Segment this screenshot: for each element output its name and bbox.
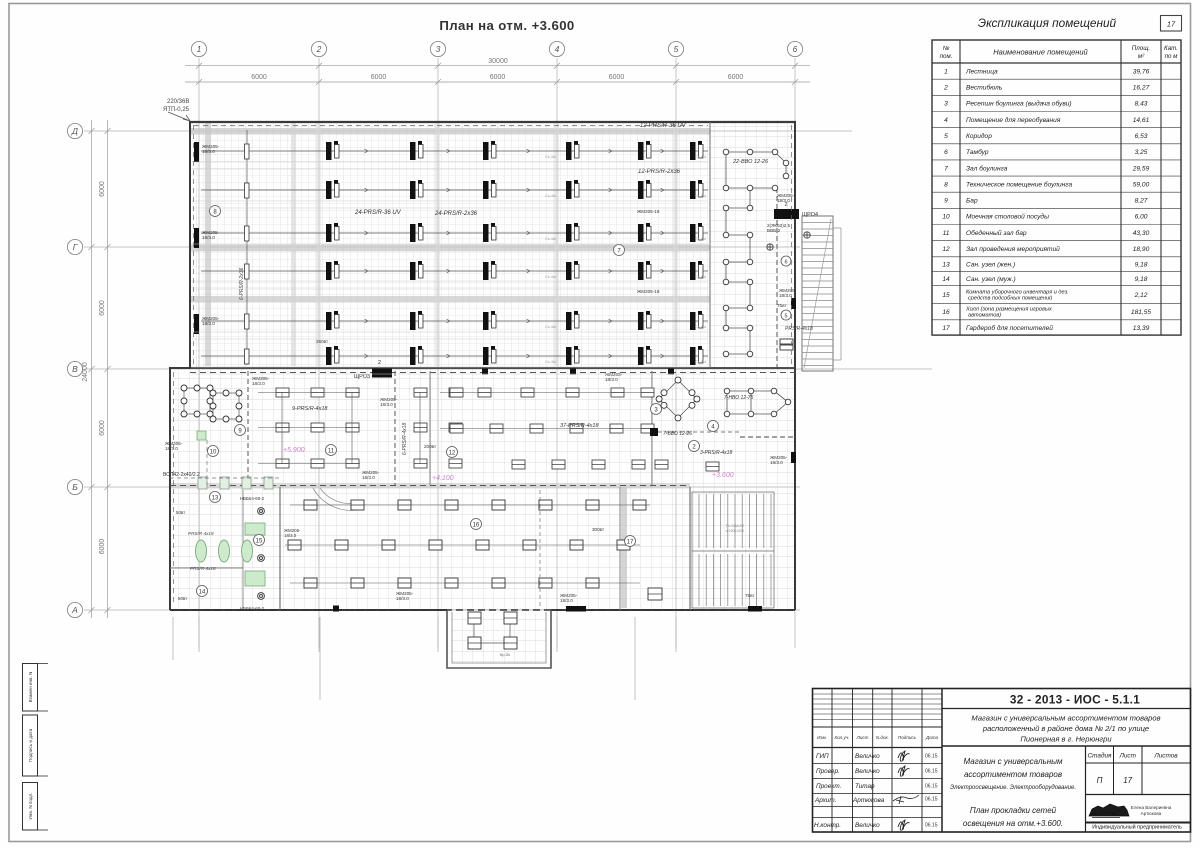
svg-text:ВВБ-2: ВВБ-2 xyxy=(767,228,781,233)
svg-text:Изм.: Изм. xyxy=(817,735,827,740)
svg-text:Кр.Зч: Кр.Зч xyxy=(500,652,510,657)
svg-text:Сь.4Ы: Сь.4Ы xyxy=(695,237,707,241)
svg-text:+5.900: +5.900 xyxy=(283,447,305,454)
svg-text:300вт: 300вт xyxy=(592,527,605,532)
svg-text:Артюкова: Артюкова xyxy=(852,797,885,804)
svg-text:Величко: Величко xyxy=(855,822,880,829)
svg-text:6000: 6000 xyxy=(490,74,506,81)
svg-text:29,59: 29,59 xyxy=(1132,165,1150,172)
svg-text:18/3.0: 18/3.0 xyxy=(770,460,783,465)
svg-text:ЩРО3: ЩРО3 xyxy=(354,374,370,380)
svg-text:06.15: 06.15 xyxy=(925,823,938,829)
svg-text:6: 6 xyxy=(944,149,948,156)
svg-text:Электроосвещение. Электрообору: Электроосвещение. Электрооборудование. xyxy=(950,785,1076,791)
svg-text:Дата: Дата xyxy=(925,735,939,740)
svg-text:24-PRS/R-2х36: 24-PRS/R-2х36 xyxy=(434,211,478,217)
svg-text:Наименование помещений: Наименование помещений xyxy=(993,48,1088,57)
svg-text:6000: 6000 xyxy=(728,74,744,81)
svg-text:9-PRS/R-4х18: 9-PRS/R-4х18 xyxy=(292,406,328,412)
svg-text:18/3.0: 18/3.0 xyxy=(252,381,265,386)
svg-text:Лист: Лист xyxy=(1118,753,1136,760)
svg-text:Д: Д xyxy=(71,126,78,136)
svg-text:4: 4 xyxy=(555,44,560,54)
svg-text:Обеденный зал бар: Обеденный зал бар xyxy=(966,229,1027,237)
svg-text:17: 17 xyxy=(942,325,950,332)
svg-text:6000: 6000 xyxy=(251,74,267,81)
svg-text:Ресепшн боулинга (выдача обуви: Ресепшн боулинга (выдача обуви) xyxy=(966,100,1072,108)
svg-text:50вт: 50вт xyxy=(176,510,185,515)
svg-text:расположенный в районе дома №: расположенный в районе дома № 2/1 по ули… xyxy=(982,724,1149,733)
svg-text:5: 5 xyxy=(784,314,787,320)
svg-text:12-PRS/R-36 UV: 12-PRS/R-36 UV xyxy=(640,123,687,129)
svg-text:18/3.0: 18/3.0 xyxy=(777,198,790,203)
svg-text:7: 7 xyxy=(944,165,948,172)
svg-text:4: 4 xyxy=(944,117,948,124)
svg-text:Проект.: Проект. xyxy=(816,783,841,790)
svg-text:Магазин с универсальным: Магазин с универсальным xyxy=(964,757,1063,766)
svg-text:Сь.4Ы: Сь.4Ы xyxy=(695,275,707,279)
svg-text:6: 6 xyxy=(784,260,787,266)
svg-text:ВСП42-2х40/2.2: ВСП42-2х40/2.2 xyxy=(163,472,200,478)
svg-text:ЩРО4: ЩРО4 xyxy=(802,212,818,218)
svg-text:N.док.: N.док. xyxy=(876,735,889,740)
svg-text:6,53: 6,53 xyxy=(1135,133,1148,140)
svg-text:18/3.0: 18/3.0 xyxy=(202,235,215,240)
svg-text:2: 2 xyxy=(378,360,381,366)
svg-text:Б: Б xyxy=(72,482,78,492)
svg-text:по м: по м xyxy=(1165,53,1179,60)
svg-text:Н.контр.: Н.контр. xyxy=(814,822,841,829)
svg-text:Техническое помещение боулинга: Техническое помещение боулинга xyxy=(966,180,1072,188)
svg-text:12-PRS/R-2х36: 12-PRS/R-2х36 xyxy=(638,169,681,175)
svg-text:06.15: 06.15 xyxy=(925,769,938,775)
svg-text:18/3.0: 18/3.0 xyxy=(202,321,215,326)
svg-text:Сь.4Ы: Сь.4Ы xyxy=(545,194,557,198)
svg-text:6,00: 6,00 xyxy=(1135,214,1148,221)
svg-text:06.15: 06.15 xyxy=(925,754,938,760)
svg-text:Елена Валериевна: Елена Валериевна xyxy=(1131,805,1172,810)
svg-text:9,18: 9,18 xyxy=(1135,261,1148,268)
svg-text:НББ64-60-2: НББ64-60-2 xyxy=(240,496,265,501)
svg-text:32 - 2013 - ИОС - 5.1.1: 32 - 2013 - ИОС - 5.1.1 xyxy=(1010,693,1140,707)
svg-text:6-PRS/R-2х36: 6-PRS/R-2х36 xyxy=(239,268,245,300)
svg-text:средств подсобных помещений: средств подсобных помещений xyxy=(968,295,1052,302)
svg-text:ГИП: ГИП xyxy=(816,753,829,760)
svg-text:Кол.уч.: Кол.уч. xyxy=(835,735,850,740)
svg-text:7-НВО 12-75: 7-НВО 12-75 xyxy=(724,395,754,401)
svg-text:16,27: 16,27 xyxy=(1133,85,1150,92)
svg-text:6: 6 xyxy=(793,44,798,54)
svg-text:PRS/R-4х18: PRS/R-4х18 xyxy=(785,326,813,332)
svg-text:Вестибюль: Вестибюль xyxy=(966,84,1003,92)
svg-text:8: 8 xyxy=(944,181,948,188)
svg-text:Пионерная в г. Нерюнгри: Пионерная в г. Нерюнгри xyxy=(1020,735,1112,744)
svg-text:3: 3 xyxy=(436,44,441,54)
svg-text:Пл.3хМхЛ2: Пл.3хМхЛ2 xyxy=(726,524,745,528)
svg-text:Гардероб для посетителей: Гардероб для посетителей xyxy=(966,324,1053,332)
svg-text:Экспликация помещений: Экспликация помещений xyxy=(978,16,1117,30)
svg-text:Сь.4Ы: Сь.4Ы xyxy=(695,194,707,198)
svg-text:50вт: 50вт xyxy=(178,596,187,601)
svg-text:Сь.4Ы: Сь.4Ы xyxy=(695,325,707,329)
svg-text:автоматов): автоматов) xyxy=(968,313,1001,319)
svg-text:Зал боулинга: Зал боулинга xyxy=(966,164,1008,172)
svg-text:Сь.4Ы: Сь.4Ы xyxy=(545,360,557,364)
svg-text:24-PRS/R-36 UV: 24-PRS/R-36 UV xyxy=(354,210,402,216)
svg-text:30000: 30000 xyxy=(488,58,508,65)
svg-text:13,39: 13,39 xyxy=(1133,325,1150,332)
svg-text:План прокладки сетей: План прокладки сетей xyxy=(970,806,1057,815)
svg-text:3: 3 xyxy=(944,101,948,108)
svg-text:Листов: Листов xyxy=(1153,753,1178,760)
svg-text:43,30: 43,30 xyxy=(1133,230,1150,237)
svg-text:ЯТП-0,25: ЯТП-0,25 xyxy=(163,107,190,113)
svg-text:Лестница: Лестница xyxy=(965,68,998,75)
svg-text:15: 15 xyxy=(256,539,263,545)
svg-text:+3.600: +3.600 xyxy=(712,472,734,479)
svg-text:6000: 6000 xyxy=(99,181,106,197)
svg-text:А: А xyxy=(71,605,78,615)
svg-text:Величко: Величко xyxy=(855,753,880,760)
svg-text:1: 1 xyxy=(944,68,948,75)
svg-text:16: 16 xyxy=(473,523,480,529)
svg-text:14: 14 xyxy=(199,590,206,596)
svg-text:39,76: 39,76 xyxy=(1133,68,1150,75)
svg-text:18/3.0: 18/3.0 xyxy=(779,293,792,298)
svg-text:Архит.: Архит. xyxy=(814,797,836,804)
svg-text:Сь.4Ы: Сь.4Ы xyxy=(695,155,707,159)
svg-text:13: 13 xyxy=(942,261,950,268)
svg-text:Кат.: Кат. xyxy=(1164,45,1178,52)
svg-text:Сан. узел (муж.): Сан. узел (муж.) xyxy=(966,276,1016,283)
svg-text:18/3.0: 18/3.0 xyxy=(202,149,215,154)
svg-text:8,43: 8,43 xyxy=(1135,101,1148,108)
svg-text:м²: м² xyxy=(1138,53,1145,60)
svg-text:75вт: 75вт xyxy=(745,593,755,598)
svg-text:12: 12 xyxy=(449,451,456,457)
svg-text:6000: 6000 xyxy=(609,74,625,81)
svg-text:1: 1 xyxy=(197,44,202,54)
svg-text:75вт: 75вт xyxy=(777,303,787,308)
svg-text:5: 5 xyxy=(674,44,679,54)
svg-text:12: 12 xyxy=(942,246,950,253)
svg-text:220/36В: 220/36В xyxy=(167,99,189,105)
svg-text:16: 16 xyxy=(942,309,950,316)
svg-text:18/3.0: 18/3.0 xyxy=(165,446,178,451)
svg-text:Стадия: Стадия xyxy=(1088,752,1113,760)
svg-text:Подпись: Подпись xyxy=(898,735,917,740)
svg-text:PRS/R-4х18: PRS/R-4х18 xyxy=(190,566,216,571)
svg-text:3-PRS/R-4х18: 3-PRS/R-4х18 xyxy=(700,450,732,456)
svg-text:Зал проведения мероприятий: Зал проведения мероприятий xyxy=(966,245,1060,253)
svg-text:Сь.4Ы: Сь.4Ы xyxy=(545,155,557,159)
svg-text:PRS/R-4х18: PRS/R-4х18 xyxy=(188,531,214,536)
svg-text:Индивидуальный предприниматель: Индивидуальный предприниматель xyxy=(1092,824,1182,831)
svg-text:18/3.0: 18/3.0 xyxy=(380,402,393,407)
svg-text:250вт: 250вт xyxy=(316,339,329,344)
svg-text:10: 10 xyxy=(210,450,217,456)
svg-text:24000: 24000 xyxy=(82,362,89,382)
svg-text:6000: 6000 xyxy=(371,74,387,81)
svg-text:2: 2 xyxy=(316,44,322,54)
svg-text:Бар: Бар xyxy=(966,198,978,205)
svg-text:18,90: 18,90 xyxy=(1133,246,1150,253)
svg-text:15: 15 xyxy=(942,292,950,299)
svg-text:ЖМ205-18: ЖМ205-18 xyxy=(637,209,660,214)
svg-text:Магазин с универсальным ассорт: Магазин с универсальным ассортиментом то… xyxy=(971,714,1160,723)
svg-text:13: 13 xyxy=(212,496,219,502)
svg-text:5: 5 xyxy=(944,133,948,140)
svg-text:17: 17 xyxy=(1167,20,1176,29)
svg-text:пом.: пом. xyxy=(940,53,953,60)
svg-text:ассортиментом товаров: ассортиментом товаров xyxy=(964,770,1062,779)
svg-text:2,12: 2,12 xyxy=(1134,292,1148,299)
svg-text:НББ64-60-2: НББ64-60-2 xyxy=(240,606,265,611)
svg-text:6000: 6000 xyxy=(99,539,106,555)
svg-text:06.15: 06.15 xyxy=(925,797,938,803)
svg-text:14,61: 14,61 xyxy=(1133,117,1150,124)
svg-text:59,00: 59,00 xyxy=(1133,181,1150,188)
svg-text:Величко: Величко xyxy=(855,768,880,775)
svg-text:Сь.4Ы: Сь.4Ы xyxy=(545,325,557,329)
svg-text:2: 2 xyxy=(943,85,948,92)
svg-text:Титар: Титар xyxy=(855,783,875,790)
svg-text:Коридор: Коридор xyxy=(966,132,992,140)
svg-text:Сан. узел (жен.): Сан. узел (жен.) xyxy=(966,261,1015,268)
svg-text:06.15: 06.15 xyxy=(925,784,938,790)
svg-text:22-ВВО 12-26: 22-ВВО 12-26 xyxy=(732,159,769,165)
svg-text:11: 11 xyxy=(328,449,335,455)
svg-text:14: 14 xyxy=(942,276,950,283)
svg-text:11: 11 xyxy=(943,230,950,237)
svg-text:18/3.0: 18/3.0 xyxy=(605,377,618,382)
svg-text:9,18: 9,18 xyxy=(1135,276,1148,283)
svg-text:Подпись и дата: Подпись и дата xyxy=(28,729,33,762)
svg-text:Лист: Лист xyxy=(856,735,869,740)
svg-text:Взамен инв. N: Взамен инв. N xyxy=(28,672,33,703)
svg-text:6000: 6000 xyxy=(99,300,106,316)
svg-text:Тамбур: Тамбур xyxy=(966,148,989,156)
svg-text:Сь.4Ы: Сь.4Ы xyxy=(545,275,557,279)
svg-text:10: 10 xyxy=(942,214,950,221)
svg-text:Помещение для переобувания: Помещение для переобувания xyxy=(966,116,1061,124)
svg-text:37-PRS/R-4х18: 37-PRS/R-4х18 xyxy=(560,423,599,429)
svg-text:Сь.4Ы: Сь.4Ы xyxy=(545,237,557,241)
svg-text:с 190х1200: с 190х1200 xyxy=(726,529,745,533)
svg-text:Инв. N подл.: Инв. N подл. xyxy=(28,792,33,819)
svg-text:18/3.0: 18/3.0 xyxy=(396,596,409,601)
svg-text:8,27: 8,27 xyxy=(1135,198,1148,205)
svg-text:18/3.0: 18/3.0 xyxy=(362,475,375,480)
svg-text:Артюкова: Артюкова xyxy=(1141,811,1162,816)
svg-text:18/3.0: 18/3.0 xyxy=(560,598,573,603)
svg-text:В: В xyxy=(72,364,78,374)
svg-text:200вт: 200вт xyxy=(424,444,437,449)
svg-text:18/3.0: 18/3.0 xyxy=(284,533,297,538)
svg-text:17: 17 xyxy=(1123,776,1132,785)
svg-text:Моечная столовой посуды: Моечная столовой посуды xyxy=(966,213,1049,221)
svg-text:План на отм. +3.600: План на отм. +3.600 xyxy=(439,18,574,33)
svg-text:6000: 6000 xyxy=(99,420,106,436)
svg-text:9: 9 xyxy=(944,198,948,205)
svg-text:181,55: 181,55 xyxy=(1131,309,1152,316)
svg-text:17: 17 xyxy=(627,540,634,546)
svg-text:ЖМ205-18: ЖМ205-18 xyxy=(637,289,660,294)
svg-text:Сь.4Ы: Сь.4Ы xyxy=(695,360,707,364)
svg-text:Площ.: Площ. xyxy=(1132,45,1150,52)
svg-text:3,25: 3,25 xyxy=(1135,149,1148,156)
svg-text:6-PRS/R-4х18: 6-PRS/R-4х18 xyxy=(402,423,408,455)
svg-text:Провер.: Провер. xyxy=(816,768,840,775)
svg-text:№: № xyxy=(943,45,950,52)
svg-text:+4.100: +4.100 xyxy=(432,475,454,482)
svg-text:П: П xyxy=(1097,776,1103,785)
svg-text:освещения на отм.+3.600.: освещения на отм.+3.600. xyxy=(963,819,1063,828)
